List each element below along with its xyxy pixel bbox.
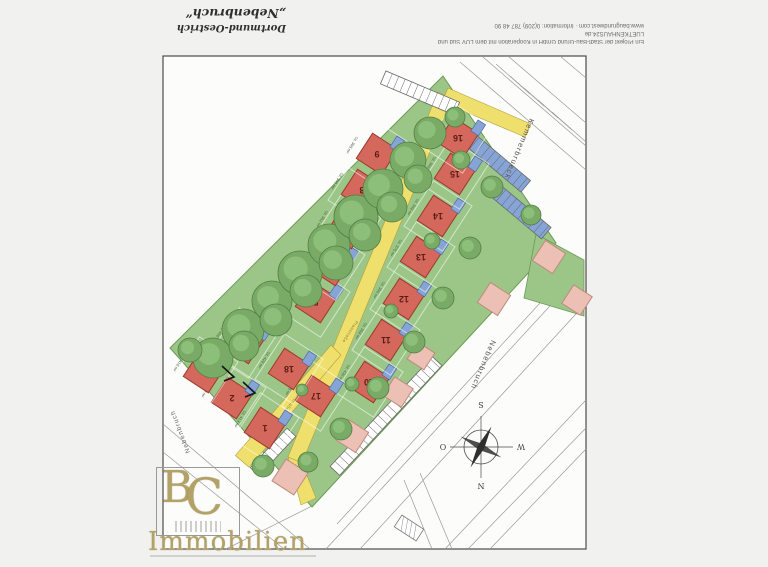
lot-number: 17: [311, 391, 321, 401]
tree: [459, 237, 481, 259]
tree: [296, 384, 308, 396]
tree: [349, 219, 381, 251]
tree: [298, 452, 318, 472]
tree: [260, 304, 292, 336]
tree: [384, 304, 398, 318]
tree: [445, 107, 465, 127]
scanned-page: Dortmund-Oestrich „Nebenbruch“ Ein Proje…: [0, 0, 768, 567]
lot-number: 12: [399, 294, 409, 304]
tree: [345, 377, 359, 391]
info-line-2: www.baugrundwest.com · Information: 0(20…: [396, 21, 644, 29]
project-title-block: Dortmund-Oestrich „Nebenbruch“: [150, 6, 286, 33]
logo-caption: Immobilien: [148, 527, 307, 557]
lot-number: 14: [433, 211, 443, 221]
compass-label-north: N: [478, 481, 485, 490]
tree: [521, 205, 541, 225]
tree: [252, 455, 274, 477]
tree: [229, 331, 259, 361]
lot-number: 11: [381, 335, 391, 345]
tree: [290, 275, 322, 307]
tree: [367, 377, 389, 399]
lot-number: 18: [284, 364, 294, 374]
project-info-block: Ein Projekt der Stadt-Bau-Grund GmbH in …: [396, 21, 644, 45]
info-line-1: Ein Projekt der Stadt-Bau-Grund GmbH in …: [396, 29, 644, 45]
project-location: Dortmund-Oestrich: [150, 21, 286, 33]
tree: [414, 117, 446, 149]
tree: [178, 338, 202, 362]
tree: [481, 176, 503, 198]
tree: [424, 233, 440, 249]
project-name: „Nebenbruch“: [150, 6, 286, 21]
tree: [330, 418, 352, 440]
site-plan-drawing: Planstraße Planstraße 1ca. 413 m²2ca. 37…: [0, 0, 768, 567]
logo-letter-c: C: [185, 468, 223, 526]
lot-number: 9: [374, 149, 379, 159]
lot-number: 13: [416, 252, 426, 262]
lot-number: 16: [453, 133, 463, 143]
lot-number: 1: [262, 423, 267, 433]
tree: [452, 151, 470, 169]
compass-label-east: O: [439, 442, 446, 451]
compass-label-south: S: [478, 400, 483, 409]
tree: [319, 246, 353, 280]
tree: [403, 331, 425, 353]
lot-number: 2: [229, 393, 234, 403]
tree: [377, 192, 407, 222]
logo-box: B C: [156, 467, 240, 536]
compass-label-west: W: [516, 442, 525, 451]
tree: [404, 165, 432, 193]
tree: [432, 287, 454, 309]
